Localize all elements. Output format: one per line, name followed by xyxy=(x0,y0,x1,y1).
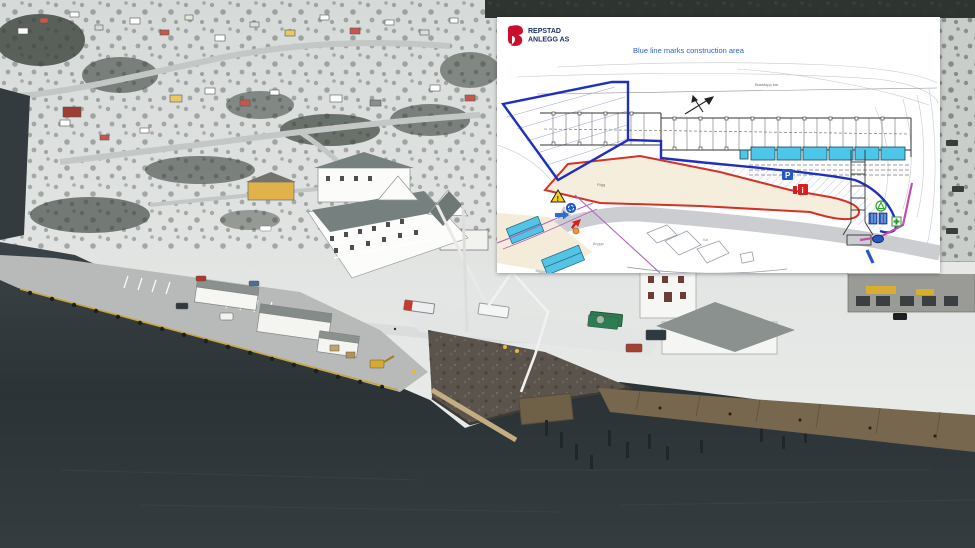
plan-logo: REPSTAD ANLEGG AS xyxy=(508,25,570,46)
road-boundary-line xyxy=(537,88,937,94)
blue-ramp-bar xyxy=(867,250,873,263)
pallet xyxy=(330,345,339,351)
recycle-station-icon xyxy=(876,201,886,211)
shop-sign-yellow xyxy=(866,286,896,294)
black-car xyxy=(893,313,907,320)
svg-text:P: P xyxy=(785,171,791,180)
red-car xyxy=(196,276,206,281)
north-arrow-icon xyxy=(685,96,713,114)
svg-text:i: i xyxy=(802,186,804,195)
floating-platform xyxy=(519,393,573,424)
forest-top-texture xyxy=(485,0,975,18)
logo-line2: ANLEGG AS xyxy=(528,37,570,44)
red-car-right xyxy=(626,344,642,352)
pier-label: Kai xyxy=(703,238,708,242)
dark-car xyxy=(176,303,188,309)
road-label: Busstopp kai xyxy=(755,82,778,87)
first-aid-icon xyxy=(892,217,901,226)
white-van xyxy=(220,313,233,320)
orange-marker-icon xyxy=(573,228,579,234)
svg-text:!: ! xyxy=(557,196,559,203)
quay-label: Brygge xyxy=(593,242,604,246)
logo-line1: REPSTAD xyxy=(528,28,561,35)
rig-area-label: Rigg xyxy=(597,182,605,187)
pallet xyxy=(346,352,355,358)
aerial-photo-screenshot: Busstopp kai xyxy=(0,0,975,548)
blue-car xyxy=(249,281,259,286)
dark-suv xyxy=(646,330,666,340)
cyan-quay-cells xyxy=(740,147,905,160)
roundabout-icon xyxy=(566,203,577,214)
white-car xyxy=(260,226,271,231)
boat-marker-icon xyxy=(873,235,884,243)
site-plan: Busstopp kai xyxy=(497,17,940,273)
shop-sign-yellow-2 xyxy=(916,289,934,295)
red-barn xyxy=(63,107,81,117)
site-plan-overlay: Busstopp kai xyxy=(497,17,940,273)
parking-sign-icon: P xyxy=(782,169,793,180)
plan-note: Blue line marks construction area xyxy=(633,46,745,55)
